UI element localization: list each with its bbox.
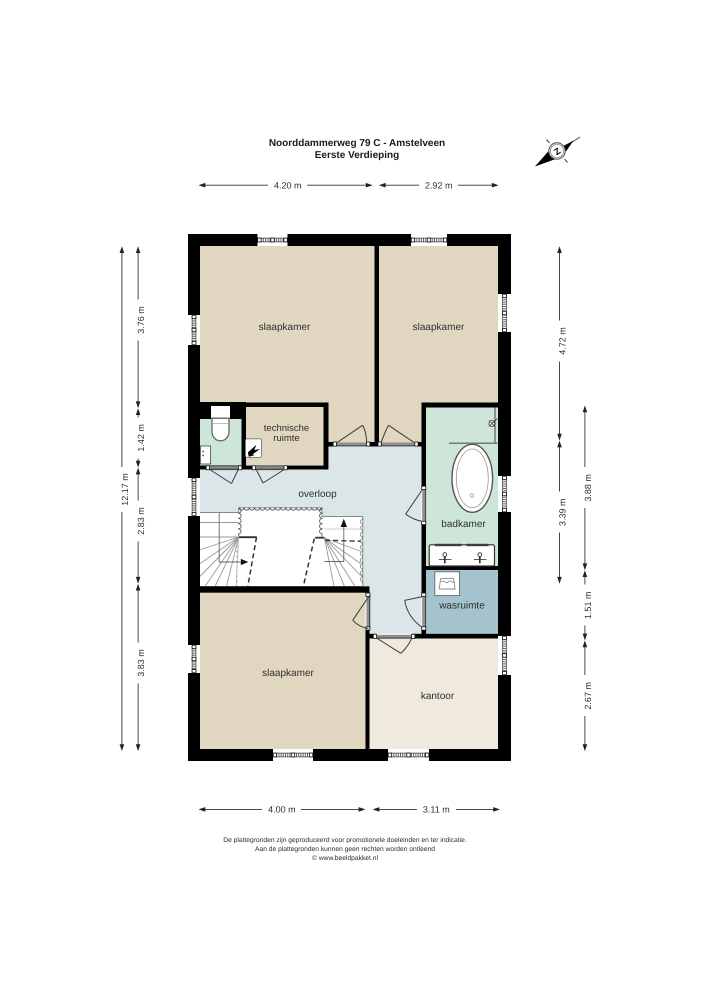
svg-text:Aan de plattegronden kunnen ge: Aan de plattegronden kunnen geen rechten… xyxy=(255,846,435,853)
svg-text:3.76 m: 3.76 m xyxy=(136,306,146,334)
svg-text:3.88 m: 3.88 m xyxy=(583,474,593,502)
svg-text:2.67 m: 2.67 m xyxy=(583,682,593,710)
svg-text:badkamer: badkamer xyxy=(441,519,486,530)
svg-text:slaapkamer: slaapkamer xyxy=(259,322,311,333)
svg-text:ruimte: ruimte xyxy=(273,433,299,444)
svg-text:3.11 m: 3.11 m xyxy=(423,805,450,815)
svg-text:3.83 m: 3.83 m xyxy=(136,649,146,677)
svg-text:slaapkamer: slaapkamer xyxy=(262,668,314,679)
svg-text:kantoor: kantoor xyxy=(421,691,455,702)
svg-text:1.51 m: 1.51 m xyxy=(583,592,593,620)
svg-text:2.92 m: 2.92 m xyxy=(425,180,453,190)
svg-text:slaapkamer: slaapkamer xyxy=(413,322,465,333)
svg-text:Noorddammerweg 79 C - Amstelve: Noorddammerweg 79 C - Amstelveen xyxy=(269,138,445,149)
svg-text:1.42 m: 1.42 m xyxy=(136,424,146,452)
svg-text:© www.beeldpakket.nl: © www.beeldpakket.nl xyxy=(312,855,378,862)
svg-text:3.39 m: 3.39 m xyxy=(557,498,567,526)
svg-text:4.72 m: 4.72 m xyxy=(557,327,567,355)
svg-text:4.20 m: 4.20 m xyxy=(274,180,302,190)
svg-text:2.83 m: 2.83 m xyxy=(136,507,146,535)
svg-text:Eerste Verdieping: Eerste Verdieping xyxy=(315,150,399,161)
svg-text:wasruimte: wasruimte xyxy=(438,601,485,612)
svg-text:12.17 m: 12.17 m xyxy=(120,473,130,506)
svg-text:overloop: overloop xyxy=(298,489,337,500)
svg-text:4.00 m: 4.00 m xyxy=(268,805,296,815)
svg-text:De plattegronden zijn geproduc: De plattegronden zijn geproduceerd voor … xyxy=(223,837,467,844)
